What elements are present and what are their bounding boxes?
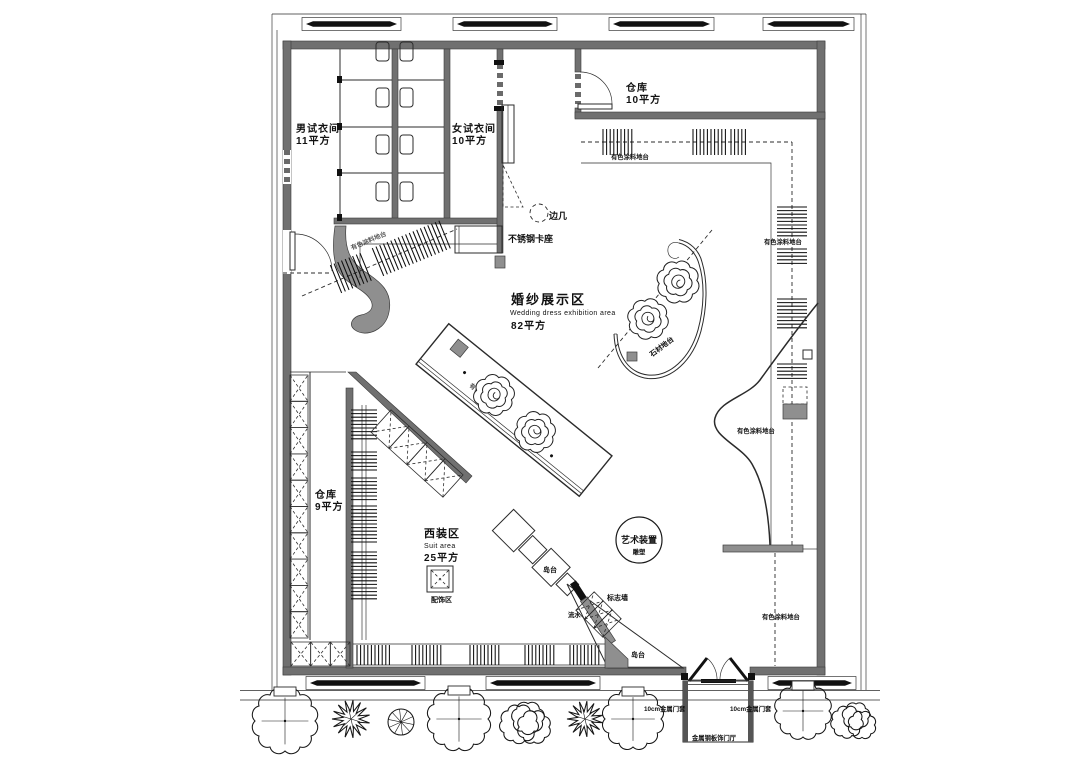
label-island-1: 岛台 [543, 565, 557, 574]
label-suit-name-en: Suit area [424, 543, 456, 550]
accessories-table [427, 566, 453, 592]
storefront-windows-top [302, 18, 854, 31]
left-wall-door [283, 230, 332, 274]
side-table-symbol [530, 204, 548, 222]
label-paint-platform-rack: 有色涂料地台 [349, 229, 387, 252]
label-storage-left-area: 9平方 [315, 500, 344, 513]
pillar [495, 256, 505, 268]
rose-flower [625, 296, 670, 341]
label-paint-platform-right3: 有色涂料地台 [762, 612, 800, 621]
landscaping-trees [252, 681, 875, 754]
label-island-2: 岛台 [631, 650, 645, 659]
label-paint-platform-right1: 有色涂料地台 [764, 237, 802, 246]
sidewalk [240, 691, 880, 701]
left-wall-window [283, 150, 291, 184]
island-counters [492, 509, 583, 600]
bottom-clothes-rack-row [353, 644, 606, 665]
label-suit-area: 25平方 [424, 551, 459, 564]
label-wedding-name-en: Wedding dress exhibition area [510, 310, 616, 317]
exterior-walls [283, 41, 825, 675]
label-suit-name: 西装区 [424, 526, 460, 540]
label-door-frame-left: 10cm金属门套 [644, 704, 686, 713]
s-curve-wall [714, 303, 818, 545]
left-storage-shelving [290, 372, 463, 666]
central-display-table: 有色涂料地台 [416, 324, 612, 497]
storefront-windows-bottom [306, 677, 856, 690]
label-art-installation-sub: 雕塑 [633, 547, 646, 556]
label-mens-fitting-name: 男试衣间 [296, 122, 340, 135]
label-side-table: 边几 [548, 210, 567, 221]
label-storage-top-area: 10平方 [626, 93, 661, 106]
storage-top-door [578, 72, 612, 109]
label-paint-platform-right2: 有色涂料地台 [737, 426, 775, 435]
label-vestibule: 金属钢板饰门厅 [691, 733, 737, 742]
fitting-stalls [337, 42, 444, 221]
diagonal-clothes-rack [302, 221, 497, 296]
right-shelf [723, 545, 803, 552]
label-door-frame-right: 10cm金属门套 [730, 704, 772, 713]
right-clothes-rack-column [723, 142, 817, 666]
label-storage-top-name: 仓库 [625, 81, 648, 94]
label-storage-left-name: 仓库 [314, 488, 337, 501]
label-stone-platform: 石材地台 [647, 335, 676, 360]
label-womens-fitting-area: 10平方 [452, 134, 487, 147]
label-accessories: 配饰区 [431, 595, 452, 604]
label-mens-fitting-area: 11平方 [296, 134, 331, 147]
label-steel-booth: 不锈钢卡座 [508, 233, 553, 244]
tall-cabinet [502, 105, 523, 207]
label-logo-wall: 标志墙 [606, 593, 628, 602]
label-wedding-area: 82平方 [511, 319, 546, 332]
label-water-feature: 流水 [568, 610, 581, 619]
womens-room-door-opening [494, 60, 504, 111]
steel-booth-seating [455, 226, 502, 253]
floor-plan-page: 有色涂料地台 [0, 0, 1080, 771]
label-womens-fitting-name: 女试衣间 [452, 122, 496, 135]
floor-plan-drawing: 有色涂料地台 [0, 0, 1080, 771]
label-paint-platform-top: 有色涂料地台 [611, 152, 649, 161]
label-wedding-name: 婚纱展示区 [511, 292, 586, 307]
label-art-installation: 艺术装置 [621, 534, 657, 545]
